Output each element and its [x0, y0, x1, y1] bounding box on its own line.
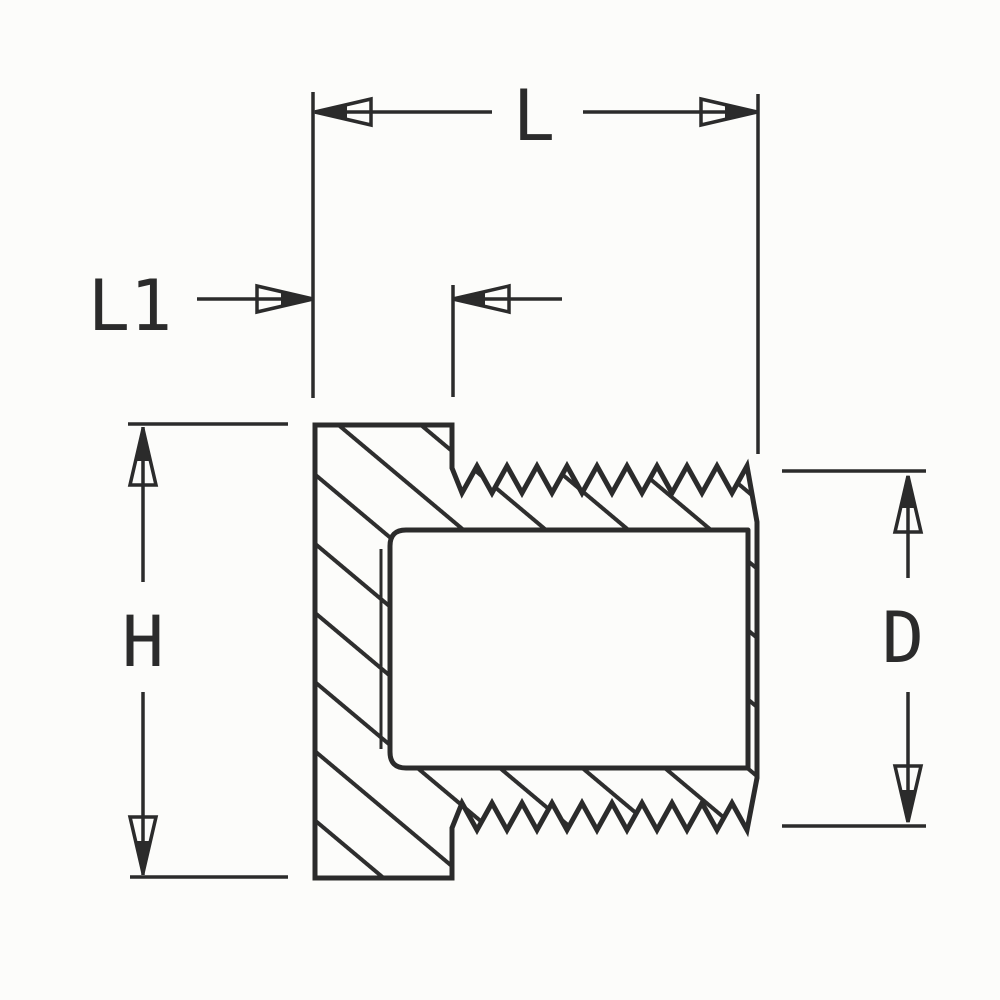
scanned-technical-drawing-page: L L1 H D	[0, 0, 1000, 1000]
plug-bore-cavity	[390, 530, 748, 768]
plug-body-section	[315, 425, 757, 878]
plug-section-drawing: L L1 H D	[0, 0, 1000, 1000]
label-thread-diameter: D	[882, 597, 924, 679]
label-head-height: H	[122, 601, 164, 683]
label-overall-length: L	[513, 75, 555, 157]
label-head-length: L1	[88, 265, 172, 347]
